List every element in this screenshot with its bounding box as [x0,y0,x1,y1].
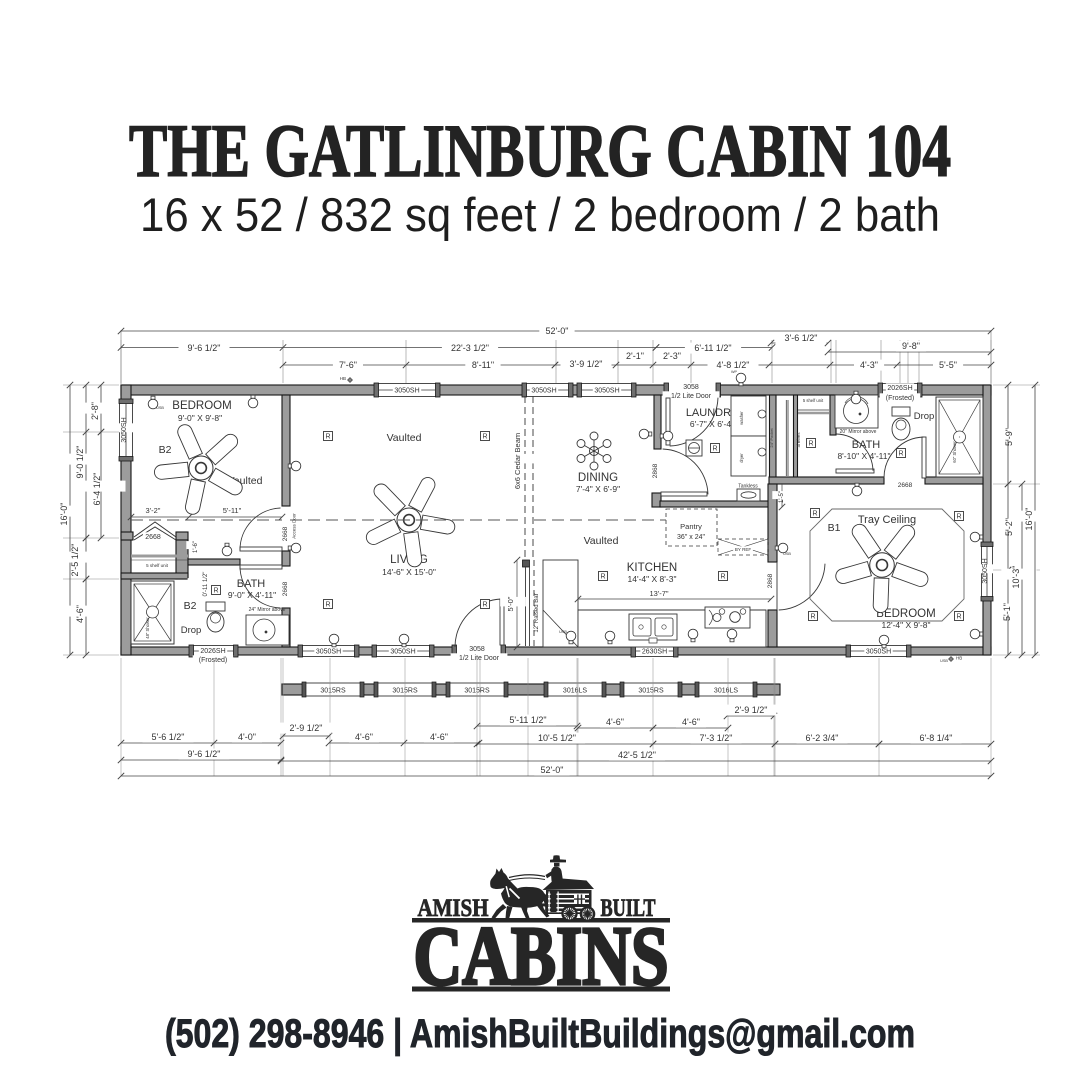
svg-text:R: R [956,614,961,621]
svg-text:1'-6": 1'-6" [193,541,199,553]
svg-text:5'-11": 5'-11" [223,506,242,515]
svg-text:Shelves: Shelves [796,433,801,448]
svg-text:5'-5": 5'-5" [939,360,957,370]
svg-text:52'-0": 52'-0" [541,765,564,775]
svg-text:3015RS: 3015RS [320,688,346,695]
svg-text:Drop: Drop [914,411,935,422]
svg-text:R: R [712,446,717,453]
svg-text:(Frosted): (Frosted) [199,657,227,664]
svg-text:4'-6": 4'-6" [355,732,373,742]
svg-text:9'-6 1/2": 9'-6 1/2" [188,749,221,759]
svg-text:DINING: DINING [578,472,618,484]
svg-text:R: R [325,602,330,609]
svg-text:2868: 2868 [767,573,774,588]
svg-text:6'-4 1/2": 6'-4 1/2" [92,473,102,506]
svg-text:dryer: dryer [739,453,744,463]
svg-text:2'-1": 2'-1" [626,351,644,361]
svg-text:BEDROOM: BEDROOM [172,400,231,412]
svg-text:16'-0": 16'-0" [1024,508,1034,531]
svg-text:R: R [325,434,330,441]
svg-text:B2: B2 [159,444,172,456]
svg-text:16 x 52 / 832 sq feet / 2 bedr: 16 x 52 / 832 sq feet / 2 bedroom / 2 ba… [140,188,940,241]
svg-text:R: R [812,511,817,518]
svg-text:4'-6": 4'-6" [682,717,700,727]
svg-text:2'-9 1/2": 2'-9 1/2" [735,705,768,715]
svg-text:5'-0": 5'-0" [506,596,515,611]
svg-text:7'-6": 7'-6" [339,360,357,370]
svg-text:3016LS: 3016LS [714,688,738,695]
svg-text:9'-0" X 9'-8": 9'-0" X 9'-8" [178,413,222,423]
svg-text:9'-8": 9'-8" [902,341,920,351]
svg-text:6'-11 1/2": 6'-11 1/2" [694,343,731,353]
svg-text:Tray Ceiling: Tray Ceiling [858,514,916,526]
svg-text:2026SH: 2026SH [200,648,225,655]
svg-text:2668: 2668 [282,526,289,541]
svg-text:BY REF: BY REF [735,547,751,552]
svg-text:2668: 2668 [145,534,161,541]
svg-text:3050SH: 3050SH [531,388,556,395]
svg-text:10'-3": 10'-3" [1011,566,1021,589]
svg-text:10'-5 1/2": 10'-5 1/2" [538,733,576,743]
svg-text:3'-9 1/2": 3'-9 1/2" [570,359,603,369]
svg-text:USB: USB [156,406,164,410]
svg-text:R: R [482,602,487,609]
svg-text:52'-0": 52'-0" [546,326,569,336]
svg-text:6'-8 1/4": 6'-8 1/4" [920,733,953,743]
svg-text:3050SH: 3050SH [866,649,891,656]
svg-text:3050SH: 3050SH [390,649,415,656]
svg-text:R: R [720,574,725,581]
svg-text:24" Pocket: 24" Pocket [769,428,774,448]
svg-text:5'-1": 5'-1" [1002,603,1012,621]
svg-text:2668: 2668 [898,482,913,489]
svg-text:3050SH: 3050SH [594,388,619,395]
svg-text:48" Shower: 48" Shower [145,617,150,639]
svg-text:3'-6 1/2": 3'-6 1/2" [785,333,818,343]
svg-text:R: R [600,574,605,581]
svg-text:9'-0 1/2": 9'-0 1/2" [75,446,85,479]
svg-text:HB: HB [956,656,962,661]
svg-text:3015RS: 3015RS [638,688,664,695]
svg-text:2'-8": 2'-8" [90,402,100,420]
svg-text:HB: HB [340,376,346,381]
svg-text:36" x 24": 36" x 24" [677,534,705,541]
svg-text:3050SH: 3050SH [316,649,341,656]
svg-text:6'-2 3/4": 6'-2 3/4" [806,733,839,743]
svg-text:R: R [810,614,815,621]
svg-text:3'-2": 3'-2" [146,506,161,515]
svg-text:USB: USB [783,552,791,556]
svg-text:42'-5 1/2": 42'-5 1/2" [618,750,656,760]
svg-text:5 shelf unit: 5 shelf unit [803,398,824,403]
svg-text:5'-2": 5'-2" [1004,518,1014,536]
svg-text:USB: USB [559,630,567,634]
svg-text:R: R [898,451,903,458]
svg-text:4'-6": 4'-6" [606,717,624,727]
svg-text:4'-0": 4'-0" [238,732,256,742]
svg-text:12' Raised Bar: 12' Raised Bar [534,593,540,632]
svg-text:20" Mirror above: 20" Mirror above [840,429,877,435]
svg-text:R: R [956,514,961,521]
svg-text:1/2 Lite Door: 1/2 Lite Door [671,393,712,400]
svg-text:0'-11 1/2": 0'-11 1/2" [203,572,209,597]
svg-text:B2: B2 [184,600,197,612]
svg-text:22'-3 1/2": 22'-3 1/2" [451,343,489,353]
svg-text:B1: B1 [828,522,841,534]
svg-text:2868: 2868 [652,463,659,478]
svg-text:60" Shower: 60" Shower [952,441,957,463]
svg-text:Access Door: Access Door [292,513,297,539]
svg-text:16'-0": 16'-0" [59,503,69,526]
svg-text:14'-4" X 8'-3": 14'-4" X 8'-3" [628,574,677,584]
svg-text:24" Mirror above: 24" Mirror above [249,607,286,613]
svg-text:Vaulted: Vaulted [584,535,619,547]
svg-text:Pantry: Pantry [680,522,702,531]
svg-text:4'-6": 4'-6" [75,605,85,623]
svg-text:5 shelf unit: 5 shelf unit [146,563,169,568]
svg-text:washer: washer [739,411,744,425]
svg-text:3058: 3058 [683,384,699,391]
svg-text:5'-6 1/2": 5'-6 1/2" [152,732,185,742]
svg-text:4'-3": 4'-3" [860,360,878,370]
svg-text:BATH: BATH [237,578,266,590]
svg-text:8'-10" X 4'-11": 8'-10" X 4'-11" [837,451,890,461]
svg-text:3050SH: 3050SH [394,388,419,395]
svg-text:R: R [482,434,487,441]
svg-text:Vaulted: Vaulted [387,432,422,444]
svg-text:13'-7": 13'-7" [649,589,668,598]
svg-text:USB: USB [940,659,948,663]
svg-text:2'-3": 2'-3" [663,351,681,361]
svg-text:2'-9 1/2": 2'-9 1/2" [290,723,323,733]
svg-text:8'-11": 8'-11" [472,360,494,370]
svg-text:R: R [808,441,813,448]
svg-text:3016LS: 3016LS [563,688,587,695]
svg-text:THE GATLINBURG CABIN 104: THE GATLINBURG CABIN 104 [129,110,951,193]
svg-text:7'-3 1/2": 7'-3 1/2" [700,733,733,743]
svg-text:5'-11 1/2": 5'-11 1/2" [509,715,546,725]
svg-text:9'-0" X 4'-11": 9'-0" X 4'-11" [228,590,276,600]
svg-text:3050SH: 3050SH [121,417,128,442]
svg-text:Drop: Drop [181,625,202,636]
svg-text:14'-6" X 15'-0": 14'-6" X 15'-0" [382,567,436,577]
svg-text:2668: 2668 [282,581,289,596]
svg-text:KITCHEN: KITCHEN [627,562,677,574]
svg-text:R: R [213,588,218,595]
svg-text:(502) 298-8946 | AmishBuiltBui: (502) 298-8946 | AmishBuiltBuildings@gma… [165,1012,915,1056]
svg-text:2'-5 1/2": 2'-5 1/2" [70,544,80,577]
svg-text:12'-4" X 9'-8": 12'-4" X 9'-8" [882,620,931,630]
svg-text:BATH: BATH [852,439,881,451]
svg-text:1/2 Lite Door: 1/2 Lite Door [459,655,500,662]
svg-text:6x6 Cedar Beam: 6x6 Cedar Beam [513,433,522,489]
svg-text:2026SH: 2026SH [887,385,912,392]
svg-text:3058: 3058 [469,646,485,653]
svg-text:4'-6": 4'-6" [430,732,448,742]
svg-text:(Frosted): (Frosted) [886,395,914,402]
svg-text:3050SH: 3050SH [982,558,989,583]
svg-text:2630SH: 2630SH [642,649,667,656]
svg-text:6'-7" X 6'-4": 6'-7" X 6'-4" [690,419,734,429]
svg-text:9'-6 1/2": 9'-6 1/2" [188,343,221,353]
svg-text:4'-8 1/2": 4'-8 1/2" [717,360,750,370]
svg-text:7'-4" X 6'-9": 7'-4" X 6'-9" [576,484,620,494]
svg-text:5'-9": 5'-9" [1004,428,1014,446]
svg-text:1'-5": 1'-5" [779,491,785,503]
